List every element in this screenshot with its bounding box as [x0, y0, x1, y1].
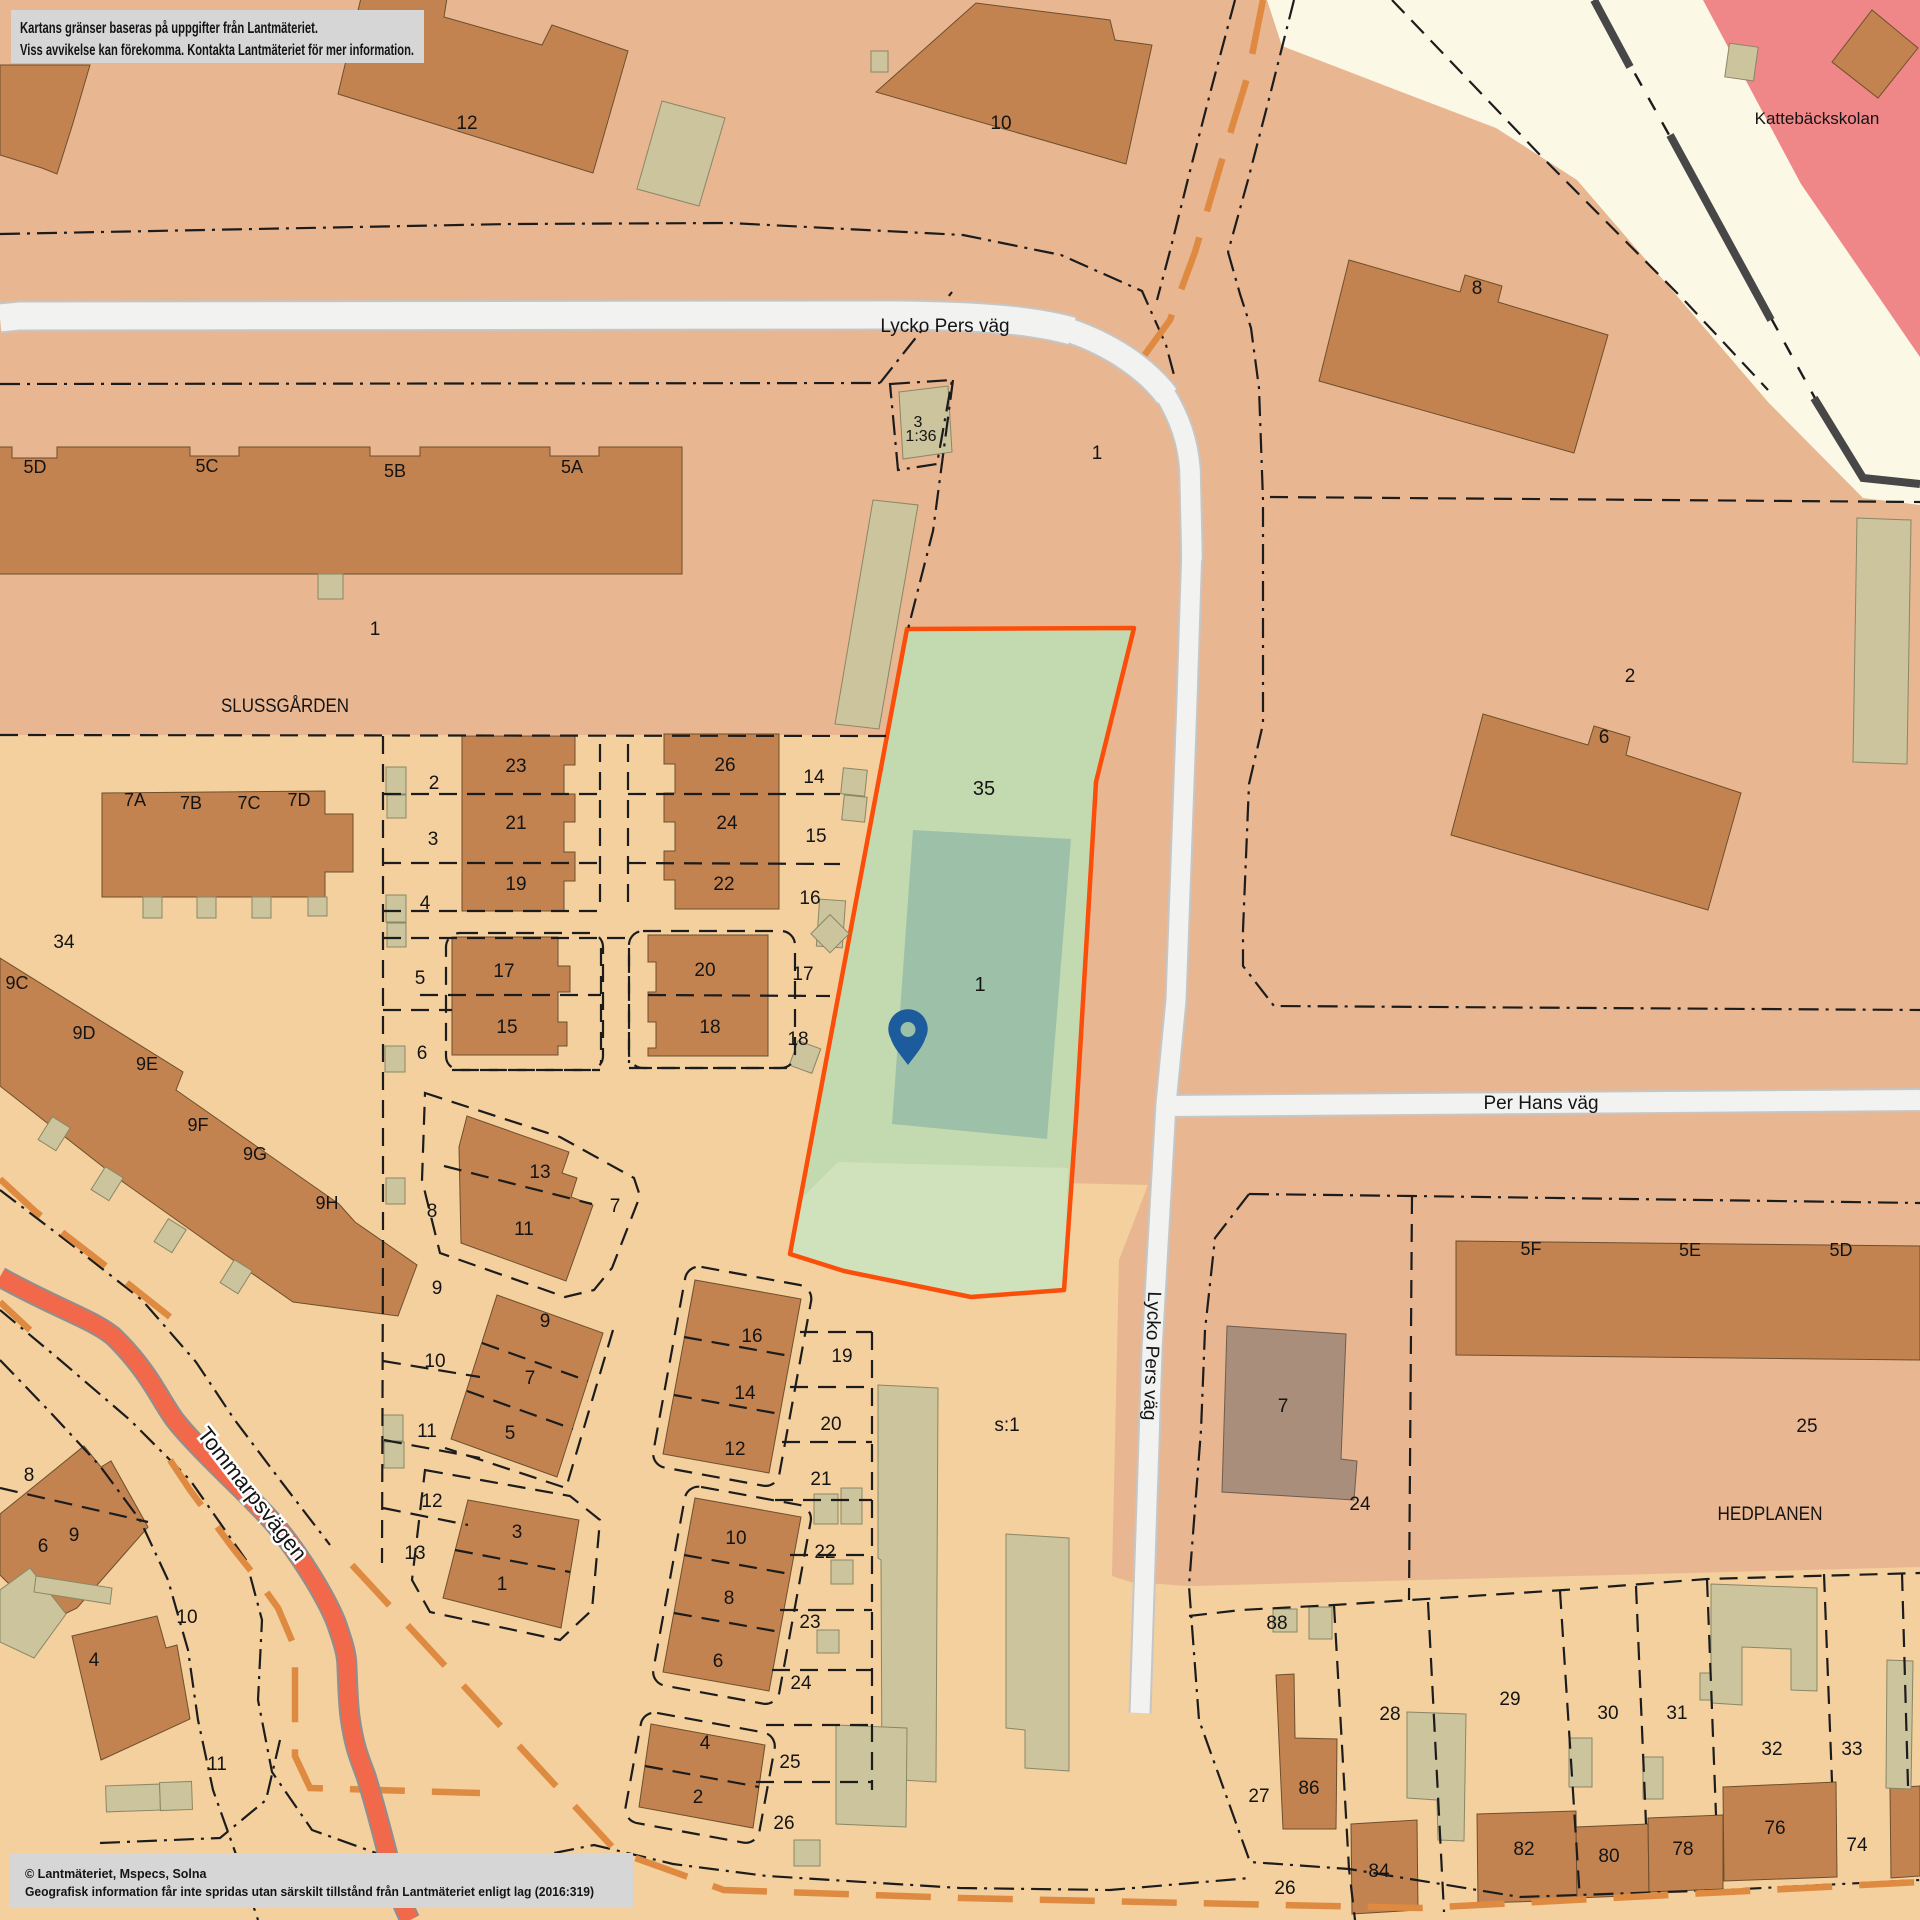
svg-text:27: 27	[1248, 1786, 1269, 1807]
svg-text:20: 20	[694, 960, 715, 981]
svg-text:1: 1	[1092, 443, 1103, 464]
svg-text:34: 34	[53, 932, 75, 953]
svg-text:9F: 9F	[187, 1115, 208, 1135]
svg-text:8: 8	[724, 1588, 735, 1609]
svg-text:11: 11	[514, 1219, 534, 1240]
svg-text:11: 11	[417, 1421, 437, 1442]
svg-text:8: 8	[1472, 278, 1483, 299]
svg-text:6: 6	[417, 1043, 428, 1064]
svg-text:7C: 7C	[237, 793, 260, 813]
svg-text:7B: 7B	[180, 793, 202, 813]
svg-text:7: 7	[1278, 1396, 1289, 1417]
svg-text:7: 7	[610, 1196, 621, 1217]
svg-text:Geografisk information får int: Geografisk information får inte spridas …	[25, 1885, 594, 1899]
svg-text:21: 21	[810, 1469, 831, 1490]
svg-text:9C: 9C	[5, 973, 28, 993]
svg-text:© Lantmäteriet, Mspecs, Solna: © Lantmäteriet, Mspecs, Solna	[25, 1867, 208, 1881]
svg-text:7A: 7A	[124, 790, 146, 810]
svg-text:33: 33	[1841, 1739, 1862, 1760]
svg-text:20: 20	[820, 1414, 841, 1435]
svg-text:16: 16	[741, 1326, 762, 1347]
svg-text:24: 24	[716, 813, 738, 834]
svg-text:14: 14	[734, 1383, 756, 1404]
svg-text:23: 23	[505, 756, 526, 777]
svg-text:7D: 7D	[287, 790, 310, 810]
svg-text:9G: 9G	[243, 1144, 267, 1164]
svg-text:29: 29	[1499, 1689, 1520, 1710]
svg-text:4: 4	[89, 1650, 100, 1671]
svg-text:Lycko Pers väg: Lycko Pers väg	[880, 316, 1009, 337]
svg-text:2: 2	[429, 773, 440, 794]
svg-text:19: 19	[505, 874, 526, 895]
svg-text:10: 10	[176, 1607, 197, 1628]
svg-text:26: 26	[773, 1813, 794, 1834]
svg-text:10: 10	[725, 1528, 746, 1549]
svg-text:86: 86	[1298, 1778, 1319, 1799]
svg-text:12: 12	[724, 1439, 745, 1460]
svg-text:9: 9	[540, 1311, 551, 1332]
svg-text:8: 8	[427, 1201, 438, 1222]
svg-text:10: 10	[990, 113, 1011, 134]
svg-text:84: 84	[1368, 1861, 1390, 1882]
svg-text:17: 17	[792, 964, 813, 985]
svg-text:4: 4	[700, 1733, 711, 1754]
svg-text:17: 17	[493, 961, 514, 982]
svg-text:6: 6	[38, 1536, 49, 1557]
svg-text:6: 6	[1599, 727, 1610, 748]
svg-text:74: 74	[1846, 1835, 1868, 1856]
svg-text:26: 26	[1274, 1878, 1295, 1899]
svg-text:2: 2	[693, 1787, 704, 1808]
svg-text:5F: 5F	[1520, 1239, 1541, 1259]
svg-text:15: 15	[805, 826, 826, 847]
svg-text:22: 22	[713, 874, 734, 895]
svg-text:SLUSSGÅRDEN: SLUSSGÅRDEN	[221, 696, 349, 717]
svg-text:9: 9	[432, 1278, 443, 1299]
svg-text:32: 32	[1761, 1739, 1782, 1760]
svg-text:15: 15	[496, 1017, 517, 1038]
svg-text:30: 30	[1597, 1703, 1618, 1724]
svg-text:1: 1	[497, 1574, 508, 1595]
svg-text:2: 2	[1625, 666, 1636, 687]
svg-text:12: 12	[421, 1491, 442, 1512]
svg-text:3: 3	[428, 829, 439, 850]
svg-text:76: 76	[1764, 1818, 1785, 1839]
svg-text:88: 88	[1266, 1613, 1287, 1634]
svg-text:80: 80	[1598, 1846, 1619, 1867]
svg-text:Kartans gränser baseras på upp: Kartans gränser baseras på uppgifter frå…	[20, 19, 318, 37]
svg-text:5E: 5E	[1679, 1240, 1701, 1260]
svg-text:3: 3	[512, 1522, 523, 1543]
svg-text:7: 7	[525, 1368, 536, 1389]
svg-text:22: 22	[814, 1542, 835, 1563]
svg-text:9H: 9H	[315, 1193, 338, 1213]
svg-text:Per Hans väg: Per Hans väg	[1483, 1093, 1598, 1114]
svg-text:28: 28	[1379, 1704, 1400, 1725]
svg-text:35: 35	[973, 778, 995, 800]
svg-text:9: 9	[69, 1525, 80, 1546]
svg-text:5: 5	[505, 1423, 516, 1444]
svg-text:5A: 5A	[561, 457, 583, 477]
svg-text:6: 6	[713, 1651, 724, 1672]
svg-text:HEDPLANEN: HEDPLANEN	[1718, 1504, 1823, 1525]
svg-text:4: 4	[420, 893, 431, 914]
svg-text:31: 31	[1666, 1703, 1687, 1724]
svg-text:25: 25	[779, 1752, 800, 1773]
svg-text:24: 24	[1349, 1494, 1371, 1515]
svg-text:26: 26	[714, 755, 735, 776]
svg-text:18: 18	[787, 1029, 808, 1050]
svg-text:5: 5	[415, 968, 426, 989]
svg-text:9D: 9D	[72, 1023, 95, 1043]
svg-text:5B: 5B	[384, 461, 406, 481]
svg-text:s:1: s:1	[994, 1415, 1019, 1436]
svg-text:78: 78	[1672, 1839, 1693, 1860]
svg-text:18: 18	[699, 1017, 720, 1038]
svg-text:10: 10	[424, 1351, 445, 1372]
svg-text:13: 13	[404, 1543, 425, 1564]
svg-text:Kattebäckskolan: Kattebäckskolan	[1755, 109, 1880, 128]
svg-text:1: 1	[370, 619, 381, 640]
svg-text:24: 24	[790, 1673, 812, 1694]
svg-text:14: 14	[803, 767, 825, 788]
svg-text:21: 21	[505, 813, 526, 834]
svg-text:5C: 5C	[195, 456, 218, 476]
svg-text:25: 25	[1796, 1416, 1817, 1437]
svg-text:5D: 5D	[23, 457, 46, 477]
svg-text:82: 82	[1513, 1839, 1534, 1860]
svg-text:11: 11	[207, 1754, 227, 1775]
svg-text:13: 13	[529, 1162, 550, 1183]
svg-text:1: 1	[974, 974, 985, 996]
svg-text:8: 8	[24, 1465, 35, 1486]
svg-text:9E: 9E	[136, 1054, 158, 1074]
svg-text:Viss avvikelse kan förekomma.: Viss avvikelse kan förekomma. Kontakta L…	[20, 42, 414, 59]
svg-text:16: 16	[799, 888, 820, 909]
svg-text:1:36: 1:36	[905, 428, 936, 445]
svg-text:5D: 5D	[1829, 1240, 1852, 1260]
svg-text:23: 23	[799, 1612, 820, 1633]
svg-text:19: 19	[831, 1346, 852, 1367]
svg-text:12: 12	[456, 113, 477, 134]
